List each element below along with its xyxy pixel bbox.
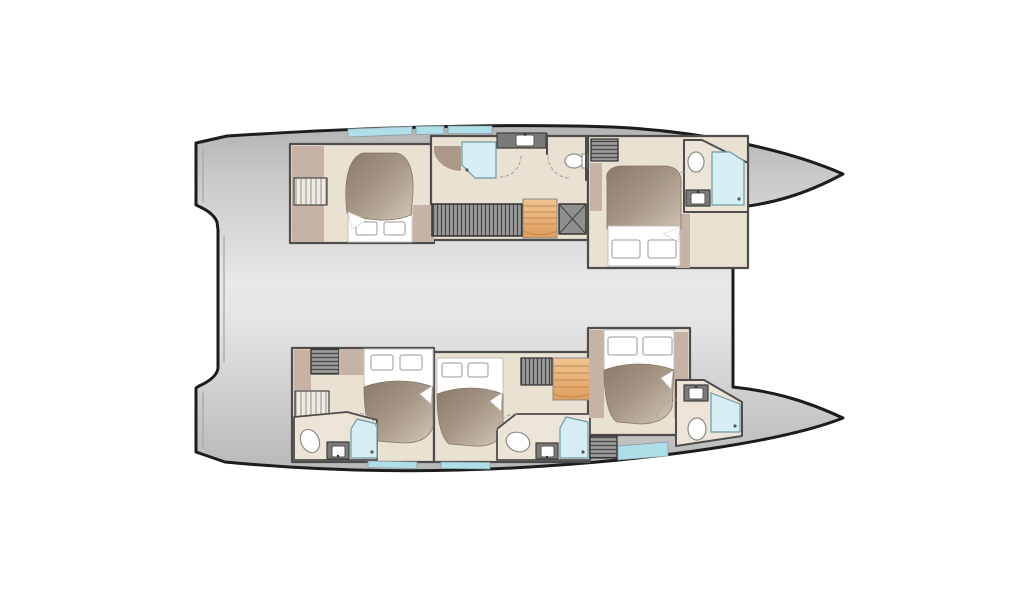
pillow <box>648 240 676 258</box>
storage-locker <box>311 349 339 374</box>
storage-locker <box>590 436 617 458</box>
wardrobe-panel <box>590 163 602 211</box>
shelf-unit <box>294 178 327 205</box>
sink-basin <box>691 193 705 204</box>
hull-window-port-2 <box>416 126 444 135</box>
hull-window-port-3 <box>448 126 492 134</box>
pillow <box>612 240 640 258</box>
toilet <box>688 418 706 440</box>
bench-storage <box>432 204 522 236</box>
hull-window-stbd-2 <box>441 462 490 469</box>
side-table <box>413 205 434 242</box>
toilet <box>688 152 704 172</box>
sink-basin <box>541 446 554 457</box>
wardrobe-panel <box>294 350 311 390</box>
bed-duvet <box>437 388 503 446</box>
pillow <box>371 355 393 370</box>
pillow <box>400 355 422 370</box>
pillow <box>608 337 637 355</box>
shower <box>712 152 744 205</box>
pillow <box>468 363 488 377</box>
toilet <box>565 154 583 168</box>
faucet-icon <box>546 456 548 458</box>
faucet-icon <box>524 133 527 136</box>
wardrobe <box>521 358 552 385</box>
bed-duvet <box>607 166 681 235</box>
faucet-icon <box>697 191 700 194</box>
bed-duvet <box>346 153 413 220</box>
sink-basin <box>516 135 534 146</box>
floorplan-svg <box>0 0 1024 600</box>
floorplan-canvas <box>0 0 1024 600</box>
pillow <box>442 363 462 377</box>
sink-basin <box>689 388 703 399</box>
shower-head-icon <box>733 424 736 427</box>
faucet-icon <box>695 386 698 389</box>
pillow <box>384 222 405 235</box>
shower-head-icon <box>465 168 468 171</box>
wardrobe <box>591 139 618 161</box>
wardrobe-panel <box>589 330 604 418</box>
wardrobe-panel <box>339 349 364 375</box>
floorplan-items <box>196 126 843 471</box>
shower-head-icon <box>737 197 740 200</box>
shower-head-icon <box>370 450 373 453</box>
stairs <box>553 358 590 400</box>
shower-head-icon <box>581 450 584 453</box>
hull-window-stbd-1 <box>368 461 417 469</box>
pillow <box>643 337 672 355</box>
faucet-icon <box>337 455 339 457</box>
bed-duvet <box>604 364 674 424</box>
